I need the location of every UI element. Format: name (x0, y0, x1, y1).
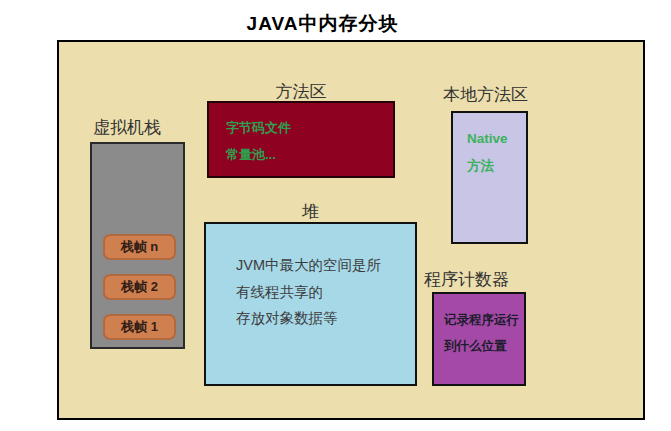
program-counter-line: 到什么位置 (444, 333, 524, 359)
stack-frame-2: 栈帧 2 (103, 274, 176, 300)
native-area-line: 方法 (467, 152, 526, 179)
heap-label: 堆 (204, 200, 417, 223)
stack-frame-n: 栈帧 n (103, 234, 176, 260)
heap-line: 有线程共享的 (236, 279, 415, 306)
vm-stack-label: 虚拟机栈 (93, 116, 161, 139)
program-counter-label: 程序计数器 (424, 268, 509, 291)
heap-line: 存放对象数据等 (236, 305, 415, 332)
program-counter-line: 记录程序运行 (444, 307, 524, 333)
program-counter-box: 记录程序运行 到什么位置 (432, 292, 526, 386)
method-area-box: 字节码文件 常量池... (207, 101, 395, 178)
heap-box: JVM中最大的空间是所 有线程共享的 存放对象数据等 (204, 222, 417, 386)
native-area-line: Native (467, 125, 526, 152)
native-area-label: 本地方法区 (443, 83, 528, 106)
native-area-box: Native 方法 (451, 111, 528, 244)
diagram-stage: JAVA中内存分块 虚拟机栈 栈帧 n 栈帧 2 栈帧 1 方法区 字节码文件 … (0, 0, 671, 431)
method-area-line: 常量池... (226, 141, 393, 168)
heap-line: JVM中最大的空间是所 (236, 252, 415, 279)
method-area-line: 字节码文件 (226, 114, 393, 141)
diagram-title: JAVA中内存分块 (0, 11, 645, 37)
stack-frame-1: 栈帧 1 (103, 314, 176, 340)
method-area-label: 方法区 (207, 80, 395, 103)
